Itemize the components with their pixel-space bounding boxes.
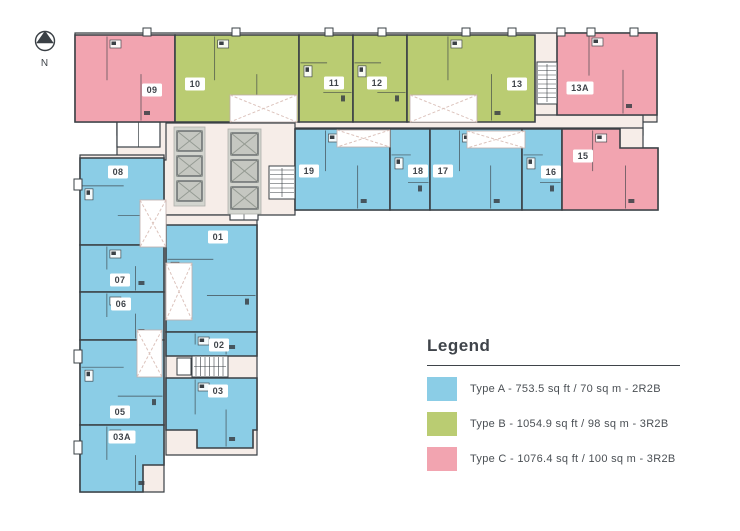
unit-label-02: 02 [209, 339, 229, 352]
unit-label-03: 03 [208, 385, 228, 398]
stair-icon [177, 358, 191, 375]
column-tick [508, 28, 516, 36]
void-opening [467, 131, 525, 148]
stair-icon [269, 166, 295, 199]
legend-swatch-type-b [427, 412, 457, 436]
column-tick [143, 28, 151, 36]
void-opening [337, 130, 390, 147]
legend: Legend Type A - 753.5 sq ft / 70 sq m - … [427, 336, 680, 471]
void-opening [410, 95, 477, 122]
svg-text:03: 03 [213, 386, 224, 396]
unit-label-18: 18 [408, 165, 428, 178]
column-tick [232, 28, 240, 36]
void-opening [137, 330, 162, 377]
unit-label-17: 17 [433, 165, 453, 178]
unit-label-09: 09 [142, 84, 162, 97]
unit-shape-13A [557, 33, 657, 115]
stair-icon [537, 62, 557, 104]
svg-text:19: 19 [304, 166, 315, 176]
svg-text:13: 13 [512, 79, 523, 89]
legend-label-type-b: Type B - 1054.9 sq ft / 98 sq m - 3R2B [470, 418, 669, 430]
facade-ledge [74, 350, 82, 363]
column-tick [378, 28, 386, 36]
svg-text:09: 09 [147, 85, 158, 95]
unit-label-07: 07 [110, 274, 130, 287]
legend-label-type-a: Type A - 753.5 sq ft / 70 sq m - 2R2B [470, 383, 661, 395]
svg-text:11: 11 [329, 78, 339, 88]
svg-text:18: 18 [413, 166, 424, 176]
unit-label-08: 08 [108, 166, 128, 179]
svg-text:06: 06 [116, 299, 127, 309]
unit-09 [75, 35, 175, 122]
legend-item-type-c: Type C - 1076.4 sq ft / 100 sq m - 3R2B [427, 447, 680, 471]
legend-title: Legend [427, 336, 680, 366]
svg-text:13A: 13A [571, 83, 589, 93]
legend-item-type-a: Type A - 753.5 sq ft / 70 sq m - 2R2B [427, 377, 680, 401]
svg-text:07: 07 [115, 275, 126, 285]
unit-label-13A: 13A [567, 82, 594, 95]
unit-label-19: 19 [299, 165, 319, 178]
floor-plan-page: { "meta": { "width": 740, "height": 531 … [0, 0, 740, 531]
north-indicator: N [36, 31, 55, 69]
unit-label-01: 01 [208, 231, 228, 244]
legend-swatch-type-a [427, 377, 457, 401]
unit-label-05: 05 [110, 406, 130, 419]
void-opening [230, 95, 297, 122]
legend-swatch-type-c [427, 447, 457, 471]
unit-13A [557, 33, 657, 115]
column-tick [630, 28, 638, 36]
elevator-bank [174, 127, 205, 206]
svg-text:05: 05 [115, 407, 126, 417]
column-tick [557, 28, 565, 36]
facade-ledge [74, 441, 82, 454]
unit-label-10: 10 [185, 78, 205, 91]
svg-text:16: 16 [546, 167, 557, 177]
svg-text:15: 15 [578, 151, 589, 161]
legend-item-type-b: Type B - 1054.9 sq ft / 98 sq m - 3R2B [427, 412, 680, 436]
svg-text:10: 10 [190, 79, 201, 89]
column-tick [587, 28, 595, 36]
svg-text:12: 12 [372, 78, 383, 88]
column-tick [325, 28, 333, 36]
unit-label-16: 16 [541, 166, 561, 179]
unit-label-15: 15 [573, 150, 593, 163]
unit-shape-09 [75, 35, 175, 122]
svg-text:08: 08 [113, 167, 124, 177]
svg-text:01: 01 [213, 232, 224, 242]
unit-label-11: 11 [324, 77, 344, 90]
elevator-bank [228, 129, 261, 214]
north-label: N [41, 58, 49, 69]
unit-label-03A: 03A [109, 431, 136, 444]
void-opening [166, 263, 192, 320]
column-tick [462, 28, 470, 36]
legend-items: Type A - 753.5 sq ft / 70 sq m - 2R2B Ty… [427, 377, 680, 471]
unit-label-12: 12 [367, 77, 387, 90]
svg-text:03A: 03A [113, 432, 131, 442]
unit-label-13: 13 [507, 78, 527, 91]
unit-label-06: 06 [111, 298, 131, 311]
void-opening [140, 200, 166, 247]
svg-text:17: 17 [438, 166, 449, 176]
svg-text:02: 02 [214, 340, 225, 350]
legend-label-type-c: Type C - 1076.4 sq ft / 100 sq m - 3R2B [470, 453, 676, 465]
stair-icon [192, 356, 228, 377]
facade-ledge [74, 179, 82, 190]
